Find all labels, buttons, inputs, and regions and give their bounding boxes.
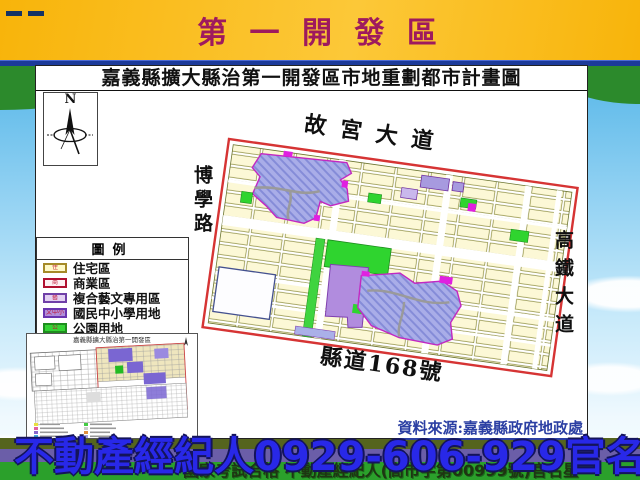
- commercial-parcel: [313, 215, 320, 222]
- legend-row: 住 住宅區: [37, 260, 188, 275]
- compass-rose-icon: [46, 107, 95, 159]
- inset-title: 嘉義縣擴大縣治第一開發區: [73, 335, 152, 344]
- road-label-hsr-blvd: 高鐵大道: [550, 230, 577, 342]
- residential-swatch: 住: [43, 263, 67, 273]
- compass: N: [43, 92, 98, 166]
- corner-marks: [6, 1, 50, 7]
- arts-parcel: [452, 182, 464, 192]
- map-title: 嘉義縣擴大縣治第一開發區市地重劃都市計畫圖: [36, 66, 587, 91]
- white-reserve-parcel: [213, 267, 276, 319]
- arts-swatch: 藝: [43, 293, 67, 303]
- commercial-swatch: 商: [43, 278, 67, 288]
- park-swatch: 公: [43, 323, 67, 333]
- legend-header: 圖例: [37, 238, 188, 260]
- commercial-parcel: [341, 180, 348, 188]
- commercial-parcel: [467, 203, 476, 212]
- map-panel: 嘉義縣擴大縣治第一開發區市地重劃都市計畫圖 N 故宮大道 博學路 高鐵大道 縣道…: [35, 65, 588, 439]
- broker-contact-text: 不動產經紀人0929-606-929官名星: [14, 424, 640, 480]
- compass-n-label: N: [44, 93, 97, 107]
- slide-title: 第 一 開 發 區: [197, 8, 443, 52]
- road-label-boxue-rd: 博學路: [189, 165, 216, 237]
- park-parcel: [368, 193, 382, 204]
- school-swatch: 文中小: [43, 308, 67, 318]
- park-parcel: [510, 229, 529, 242]
- arts-parcel: [401, 188, 418, 200]
- title-banner: 第 一 開 發 區: [0, 0, 640, 60]
- slide: 第 一 開 發 區: [0, 0, 640, 480]
- park-parcel: [240, 191, 252, 203]
